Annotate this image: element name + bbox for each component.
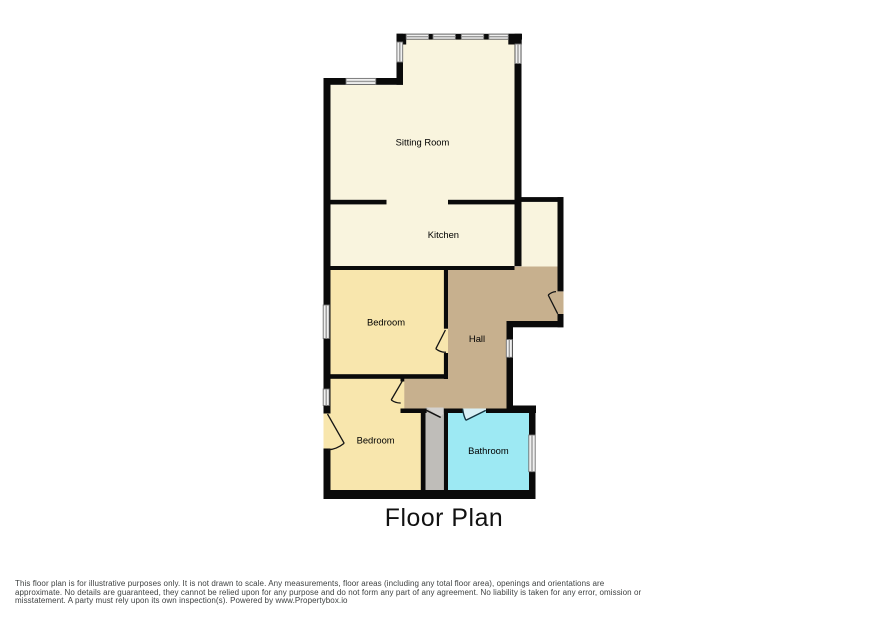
- svg-text:Bathroom: Bathroom: [468, 445, 509, 456]
- svg-text:Sitting Room: Sitting Room: [396, 136, 450, 147]
- svg-text:Bedroom: Bedroom: [357, 435, 395, 446]
- svg-text:Hall: Hall: [469, 333, 485, 344]
- svg-text:Bedroom: Bedroom: [367, 317, 405, 328]
- svg-text:Kitchen: Kitchen: [428, 229, 459, 240]
